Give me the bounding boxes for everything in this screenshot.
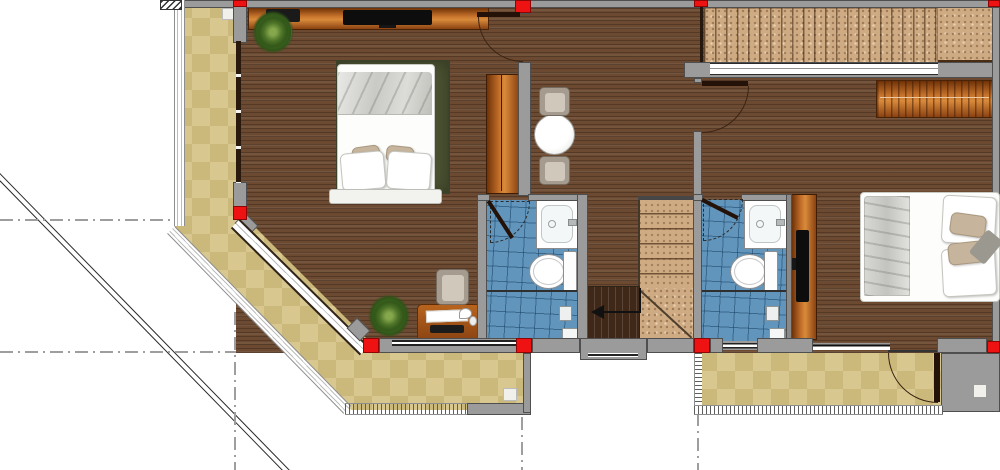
wall-bedroom-left-hall [518, 62, 531, 196]
bedroom-right-dresser-line [880, 97, 989, 98]
bathroom-left-accessory [559, 306, 572, 321]
grid-line-vertical-right [697, 413, 699, 470]
balustrade-terrace-left [174, 0, 185, 226]
wall-bottom-hall-a [532, 338, 580, 353]
hall-deck-glass-divider [700, 7, 703, 62]
wall-top-hatch [160, 0, 182, 10]
door-terrace-threshold [888, 350, 937, 352]
window-bedroom-left-west [236, 41, 241, 183]
hall-round-table [534, 114, 575, 155]
bathroom-right-sink [744, 199, 787, 249]
balustrade-terrace-right-south [694, 405, 943, 415]
wall-bottom-bedroom-right-a [710, 338, 723, 353]
floor-plan [0, 0, 1000, 470]
bedroom-right-bed-foldlines [864, 196, 910, 296]
door-bedroom-left-leaf [477, 12, 520, 17]
window-stair-south [588, 353, 638, 357]
wall-bottom-hall-b [647, 338, 694, 353]
column-left-mid [233, 206, 247, 220]
wall-terrace-left-east [523, 353, 531, 413]
bedroom-left-pillow-2 [386, 151, 433, 192]
bedroom-right-dresser [876, 80, 995, 118]
column-bottom-right [987, 341, 1000, 353]
bathroom-right-faucet [776, 219, 785, 226]
wall-stub-left-upper [233, 6, 247, 43]
hall-chair-south-pad [545, 162, 565, 181]
hall-chair-north-pad [545, 93, 565, 112]
window-bedroom-left-south [392, 340, 516, 346]
window-slider-bedroom-right [813, 343, 890, 350]
hall-chair-north [539, 87, 570, 116]
window-bedroom-right-north [710, 63, 938, 75]
wall-bedroom-right-west-stub [694, 78, 702, 83]
balustrade-terrace-right-west [694, 353, 702, 411]
wall-stub-left-lower [233, 182, 247, 208]
bathroom-left-shower-partition [487, 290, 577, 292]
hall-chair-south [539, 156, 570, 185]
stair-top-edge [638, 196, 694, 200]
wall-bathroom-right-north-b [741, 194, 790, 201]
wall-terrace-left-corner [467, 403, 531, 415]
bathroom-left-toilet-tank [563, 251, 577, 292]
deck-gravel-strip [938, 7, 992, 60]
bedroom-left-headboard [329, 189, 442, 204]
wall-bathroom-left-west [477, 194, 487, 350]
stair-arrow-vertical [639, 288, 641, 313]
bedroom-left-bed-foldline [338, 72, 432, 114]
column-top-hall-east [694, 0, 708, 7]
terrace-right-service-block [941, 353, 1000, 412]
bedroom-left-pillow-1 [339, 150, 386, 192]
bedroom-right-tv [796, 230, 809, 302]
column-top-bedroom-left [233, 0, 247, 7]
bedroom-left-tv-stand [379, 25, 396, 28]
door-terrace-leaf [934, 353, 940, 402]
wall-bathroom-right-east [786, 194, 792, 350]
wall-bathroom-left-east [577, 194, 588, 350]
bathroom-right-accessory [766, 306, 779, 321]
desk-keyboard [430, 325, 464, 333]
desk-mouse [469, 316, 477, 326]
bedroom-left-tv [343, 10, 432, 25]
bathroom-right-toilet-tank [764, 251, 778, 292]
wall-bottom-bedroom-right-b [757, 338, 813, 353]
deck-plank-joints [704, 7, 938, 62]
stair-upper-flight [638, 198, 695, 288]
stair-arrow-head [591, 305, 604, 319]
column-bottom-hall-west [516, 338, 532, 353]
terrace-right-drain-tile [973, 384, 987, 398]
bathroom-left-sink [536, 199, 579, 249]
bedroom-left-desk-chair [436, 269, 469, 305]
door-bedroom-right-leaf [702, 81, 748, 86]
wall-bottom-bedroom-right-c [937, 338, 987, 353]
grid-line-vertical-mid [521, 417, 523, 470]
grid-line-horizontal-upper [0, 219, 172, 221]
column-top-right [988, 0, 1000, 7]
bedroom-left-wardrobe [486, 74, 520, 194]
bathroom-right-drain [756, 220, 764, 228]
stair-arrow-horizontal [601, 311, 641, 313]
bathroom-left-faucet [568, 219, 577, 226]
bedroom-left-wardrobe-seam [501, 75, 502, 191]
balustrade-terrace-bottom [345, 403, 471, 415]
terrace-drain-tile-2 [503, 388, 517, 401]
wall-bathroom-right-west [693, 131, 702, 350]
window-bedroom-right-south [723, 341, 757, 350]
column-bottom-hall-east [694, 338, 710, 353]
desk-chair-pad [442, 275, 464, 301]
bathroom-left-drain [548, 220, 556, 228]
bathroom-right-shower-partition [701, 290, 786, 292]
